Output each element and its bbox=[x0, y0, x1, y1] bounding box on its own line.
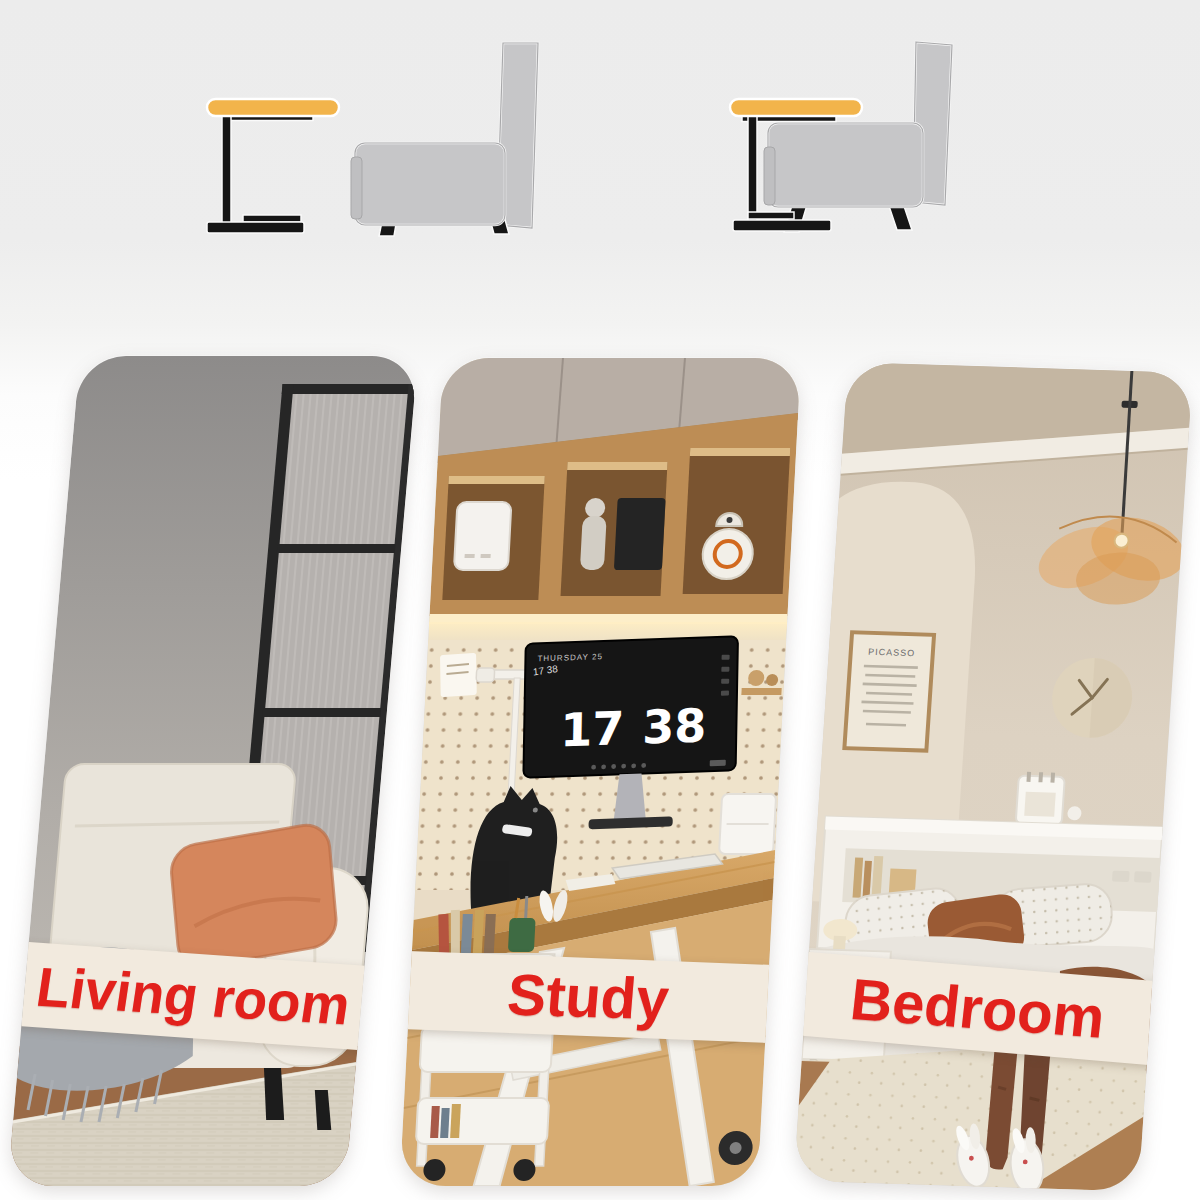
cart-book bbox=[430, 1106, 440, 1138]
scene-label: Study bbox=[506, 966, 672, 1029]
wall-poster: PICASSO bbox=[844, 632, 934, 750]
clock-hours: 17 bbox=[560, 701, 625, 757]
living-room-photo bbox=[7, 356, 418, 1186]
product-collage: Living room bbox=[0, 0, 1200, 1200]
peg-shelf bbox=[741, 688, 781, 695]
c-side-table-icon bbox=[207, 99, 339, 233]
armchair-icon bbox=[764, 42, 952, 232]
orange-pillow bbox=[169, 821, 338, 971]
usage-diagram-table-over-chair bbox=[728, 35, 1088, 240]
study-photo: THURSDAY 25 17 38 17 38 bbox=[400, 358, 801, 1186]
cart-books bbox=[436, 910, 496, 957]
scene-card-study: THURSDAY 25 17 38 17 38 bbox=[400, 358, 801, 1186]
pencil-cup bbox=[508, 918, 536, 952]
sticky-note bbox=[440, 653, 477, 697]
scene-label-band: Study bbox=[400, 950, 797, 1044]
scene-label: Bedroom bbox=[848, 970, 1108, 1047]
outlet bbox=[1112, 871, 1130, 883]
armchair-icon bbox=[351, 43, 538, 236]
scene-card-living-room: Living room bbox=[7, 356, 418, 1186]
black-frame bbox=[614, 498, 666, 570]
poster-title: PICASSO bbox=[868, 647, 916, 658]
usage-diagram-table-beside-chair bbox=[195, 35, 550, 240]
bedroom-photo: PICASSO bbox=[794, 362, 1193, 1192]
scene-label: Living room bbox=[33, 959, 354, 1033]
bulb bbox=[1114, 533, 1129, 547]
clock-minutes: 38 bbox=[642, 698, 707, 754]
scene-card-bedroom: PICASSO bbox=[794, 362, 1193, 1192]
white-projector bbox=[454, 502, 512, 570]
outlet bbox=[1134, 871, 1152, 883]
